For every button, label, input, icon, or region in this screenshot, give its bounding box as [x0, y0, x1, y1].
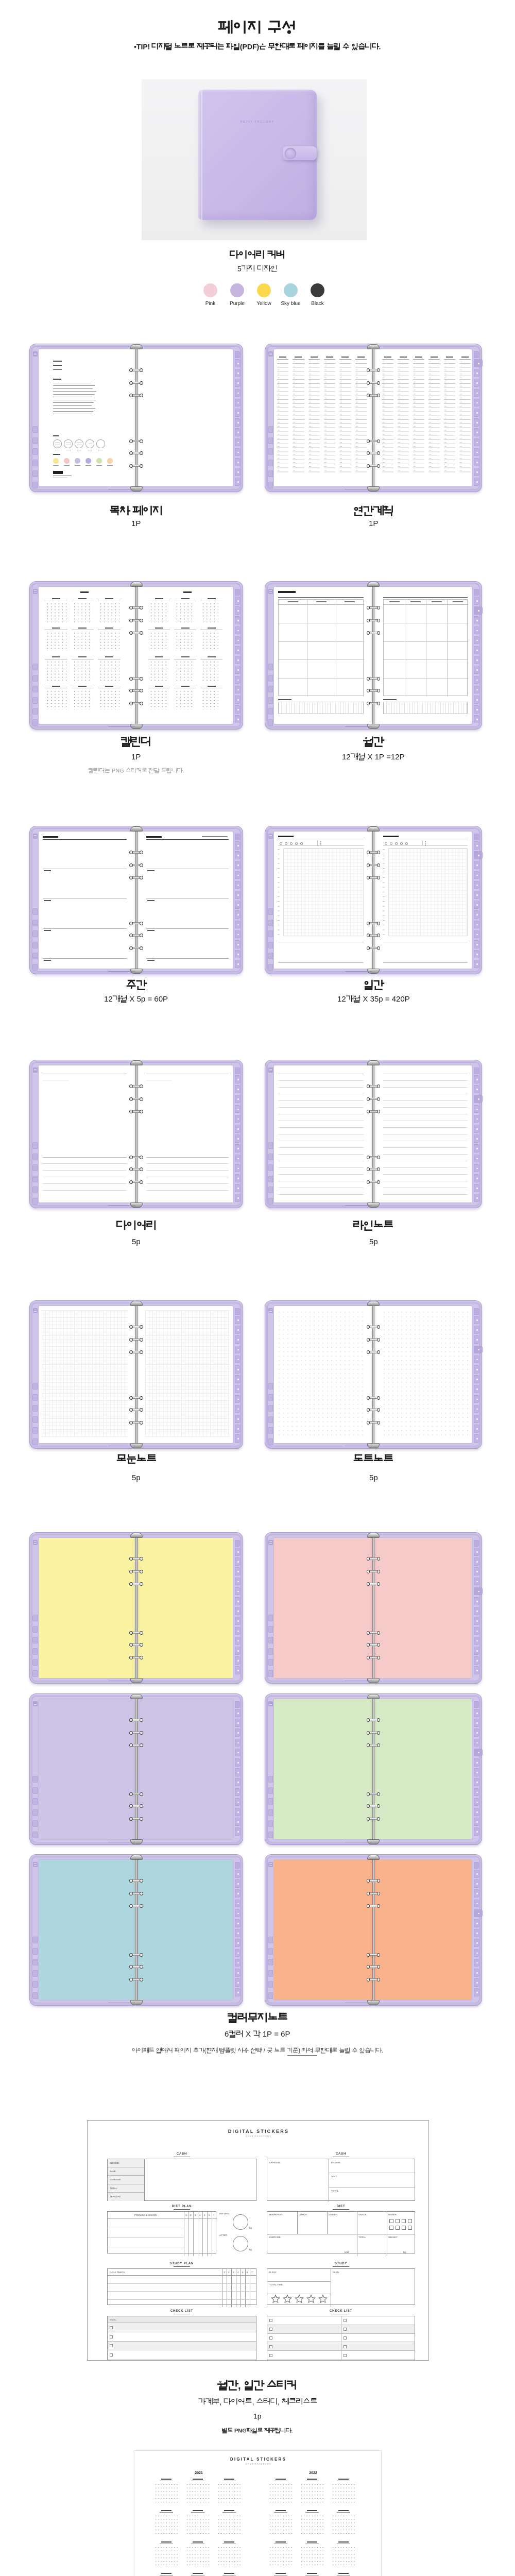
svg-text:,: ,	[252, 2398, 254, 2406]
svg-text:60P: 60P	[154, 995, 168, 1004]
svg-text:=12P: =12P	[386, 753, 404, 761]
svg-text:.: .	[382, 2048, 383, 2054]
svg-text:12: 12	[337, 995, 346, 1004]
svg-text:,: ,	[277, 2398, 279, 2406]
svg-text:5p: 5p	[132, 1238, 141, 1246]
svg-text:/: /	[264, 2048, 266, 2054]
svg-text:12: 12	[342, 753, 351, 761]
svg-text:X: X	[130, 995, 135, 1004]
svg-text:X: X	[246, 2030, 251, 2039]
svg-text:.: .	[182, 768, 184, 774]
svg-text:X: X	[368, 753, 373, 761]
svg-text:5: 5	[237, 264, 242, 273]
svg-text:PNG: PNG	[112, 768, 124, 774]
svg-text:6: 6	[225, 2030, 229, 2039]
svg-text:X: X	[363, 995, 368, 1004]
svg-text:35p: 35p	[370, 995, 383, 1004]
svg-text:PNG: PNG	[234, 2428, 247, 2434]
svg-text:1p: 1p	[253, 2412, 262, 2420]
svg-text:1P: 1P	[131, 753, 141, 761]
svg-text:.: .	[291, 2428, 293, 2434]
svg-text:1P: 1P	[131, 519, 141, 528]
svg-text:(PDF): (PDF)	[240, 42, 259, 50]
svg-text:1P: 1P	[263, 2030, 272, 2039]
svg-text:420P: 420P	[391, 995, 409, 1004]
svg-text:12: 12	[104, 995, 113, 1004]
svg-text:5p: 5p	[369, 1473, 378, 1482]
svg-text:1P: 1P	[369, 519, 378, 528]
svg-text:=: =	[148, 995, 152, 1004]
svg-text:,: ,	[238, 2380, 241, 2392]
svg-text:5p: 5p	[369, 1238, 378, 1246]
svg-text:=: =	[274, 2030, 279, 2039]
svg-text:6P: 6P	[281, 2030, 290, 2039]
svg-text:): )	[298, 2048, 300, 2054]
svg-text:5p: 5p	[137, 995, 146, 1004]
svg-text:.: .	[379, 42, 381, 50]
svg-text:(: (	[204, 2048, 207, 2054]
svg-text:•TIP!: •TIP!	[134, 42, 150, 50]
svg-text:=: =	[385, 995, 389, 1004]
svg-text:,: ,	[219, 2398, 221, 2406]
svg-text:5p: 5p	[132, 1473, 141, 1482]
svg-text:1P: 1P	[375, 753, 384, 761]
